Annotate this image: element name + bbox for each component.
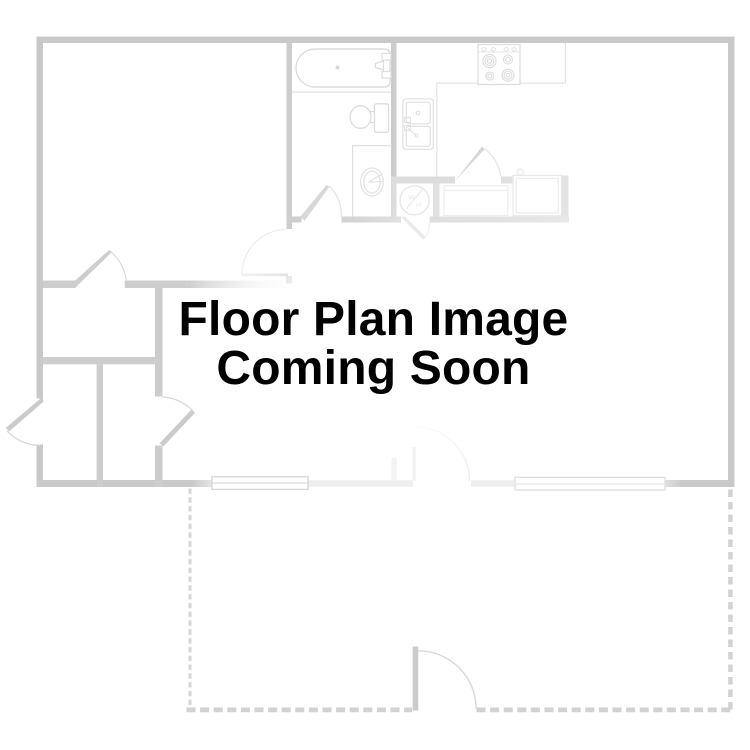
svg-text:H: H bbox=[416, 202, 421, 209]
svg-text:W: W bbox=[408, 195, 415, 202]
